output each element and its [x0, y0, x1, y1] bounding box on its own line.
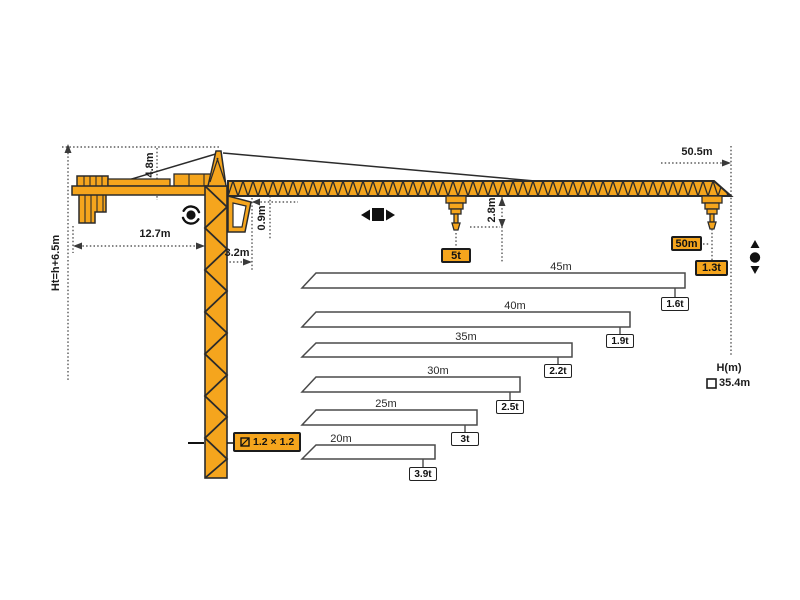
square-section-icon	[240, 437, 250, 447]
pendant-jib	[223, 153, 535, 181]
trolley-hook-mid	[446, 196, 466, 230]
bar-length-label: 45m	[541, 261, 581, 273]
total-height-label: Ht=h+6.5m	[50, 218, 62, 308]
max-load-box: 5t	[441, 248, 471, 263]
bar-capacity-box: 3t	[451, 432, 479, 446]
bar-length-label: 35m	[446, 331, 486, 343]
mast-section-box: 1.2 × 1.2	[233, 432, 301, 452]
max-radius-label: 50.5m	[667, 146, 727, 158]
jib-length-bar-45m	[302, 273, 685, 288]
jib-length-bar-25m	[302, 410, 477, 425]
bar-capacity-box: 3.9t	[409, 467, 437, 481]
square-outline-icon	[706, 378, 717, 389]
jib-depth-label: 0.9m	[256, 198, 268, 238]
hook-updown-icon	[750, 240, 760, 274]
bar-capacity-box: 2.2t	[544, 364, 572, 378]
bar-length-label: 40m	[495, 300, 535, 312]
tower-mast	[205, 186, 227, 478]
jib-offset-label: 3.2m	[219, 247, 255, 259]
bar-length-label: 30m	[418, 365, 458, 377]
machinery-platform	[108, 179, 170, 186]
dimension-arrows	[65, 144, 732, 266]
freestanding-height-note: 35.4m	[706, 377, 750, 389]
bar-capacity-box: 1.6t	[661, 297, 689, 311]
trolley-hook-tip	[702, 196, 722, 229]
crane-diagram: Ht=h+6.5m 12.7m 4.8m 3.2m 0.9m 2.8m 50.5…	[0, 0, 800, 600]
trolley-travel-icon	[361, 208, 395, 221]
rotation-icon	[183, 206, 199, 223]
jib-length-bar-35m	[302, 343, 572, 357]
tip-load-box: 1.3t	[695, 260, 728, 276]
jib	[228, 181, 731, 196]
counter-jib-beam	[72, 186, 219, 195]
tail-radius-label: 12.7m	[125, 228, 185, 240]
jib-length-bar-20m	[302, 445, 435, 459]
mast-section-label: 1.2 × 1.2	[253, 436, 294, 448]
hook-drop-label: 2.8m	[486, 190, 498, 230]
operator-cab	[228, 196, 251, 232]
counterweight	[77, 176, 108, 223]
bar-capacity-box: 1.9t	[606, 334, 634, 348]
freestanding-height-value: 35.4m	[719, 377, 750, 389]
bar-length-label: 25m	[366, 398, 406, 410]
load-chart-bars	[302, 273, 685, 459]
jib-length-bar-30m	[302, 377, 520, 392]
tip-radius-box: 50m	[671, 236, 702, 251]
bar-length-label: 20m	[321, 433, 361, 445]
jib-length-bar-40m	[302, 312, 630, 327]
bar-capacity-box: 2.5t	[496, 400, 524, 414]
head-height-label: 4.8m	[144, 145, 156, 185]
height-axis-label: H(m)	[699, 362, 759, 374]
